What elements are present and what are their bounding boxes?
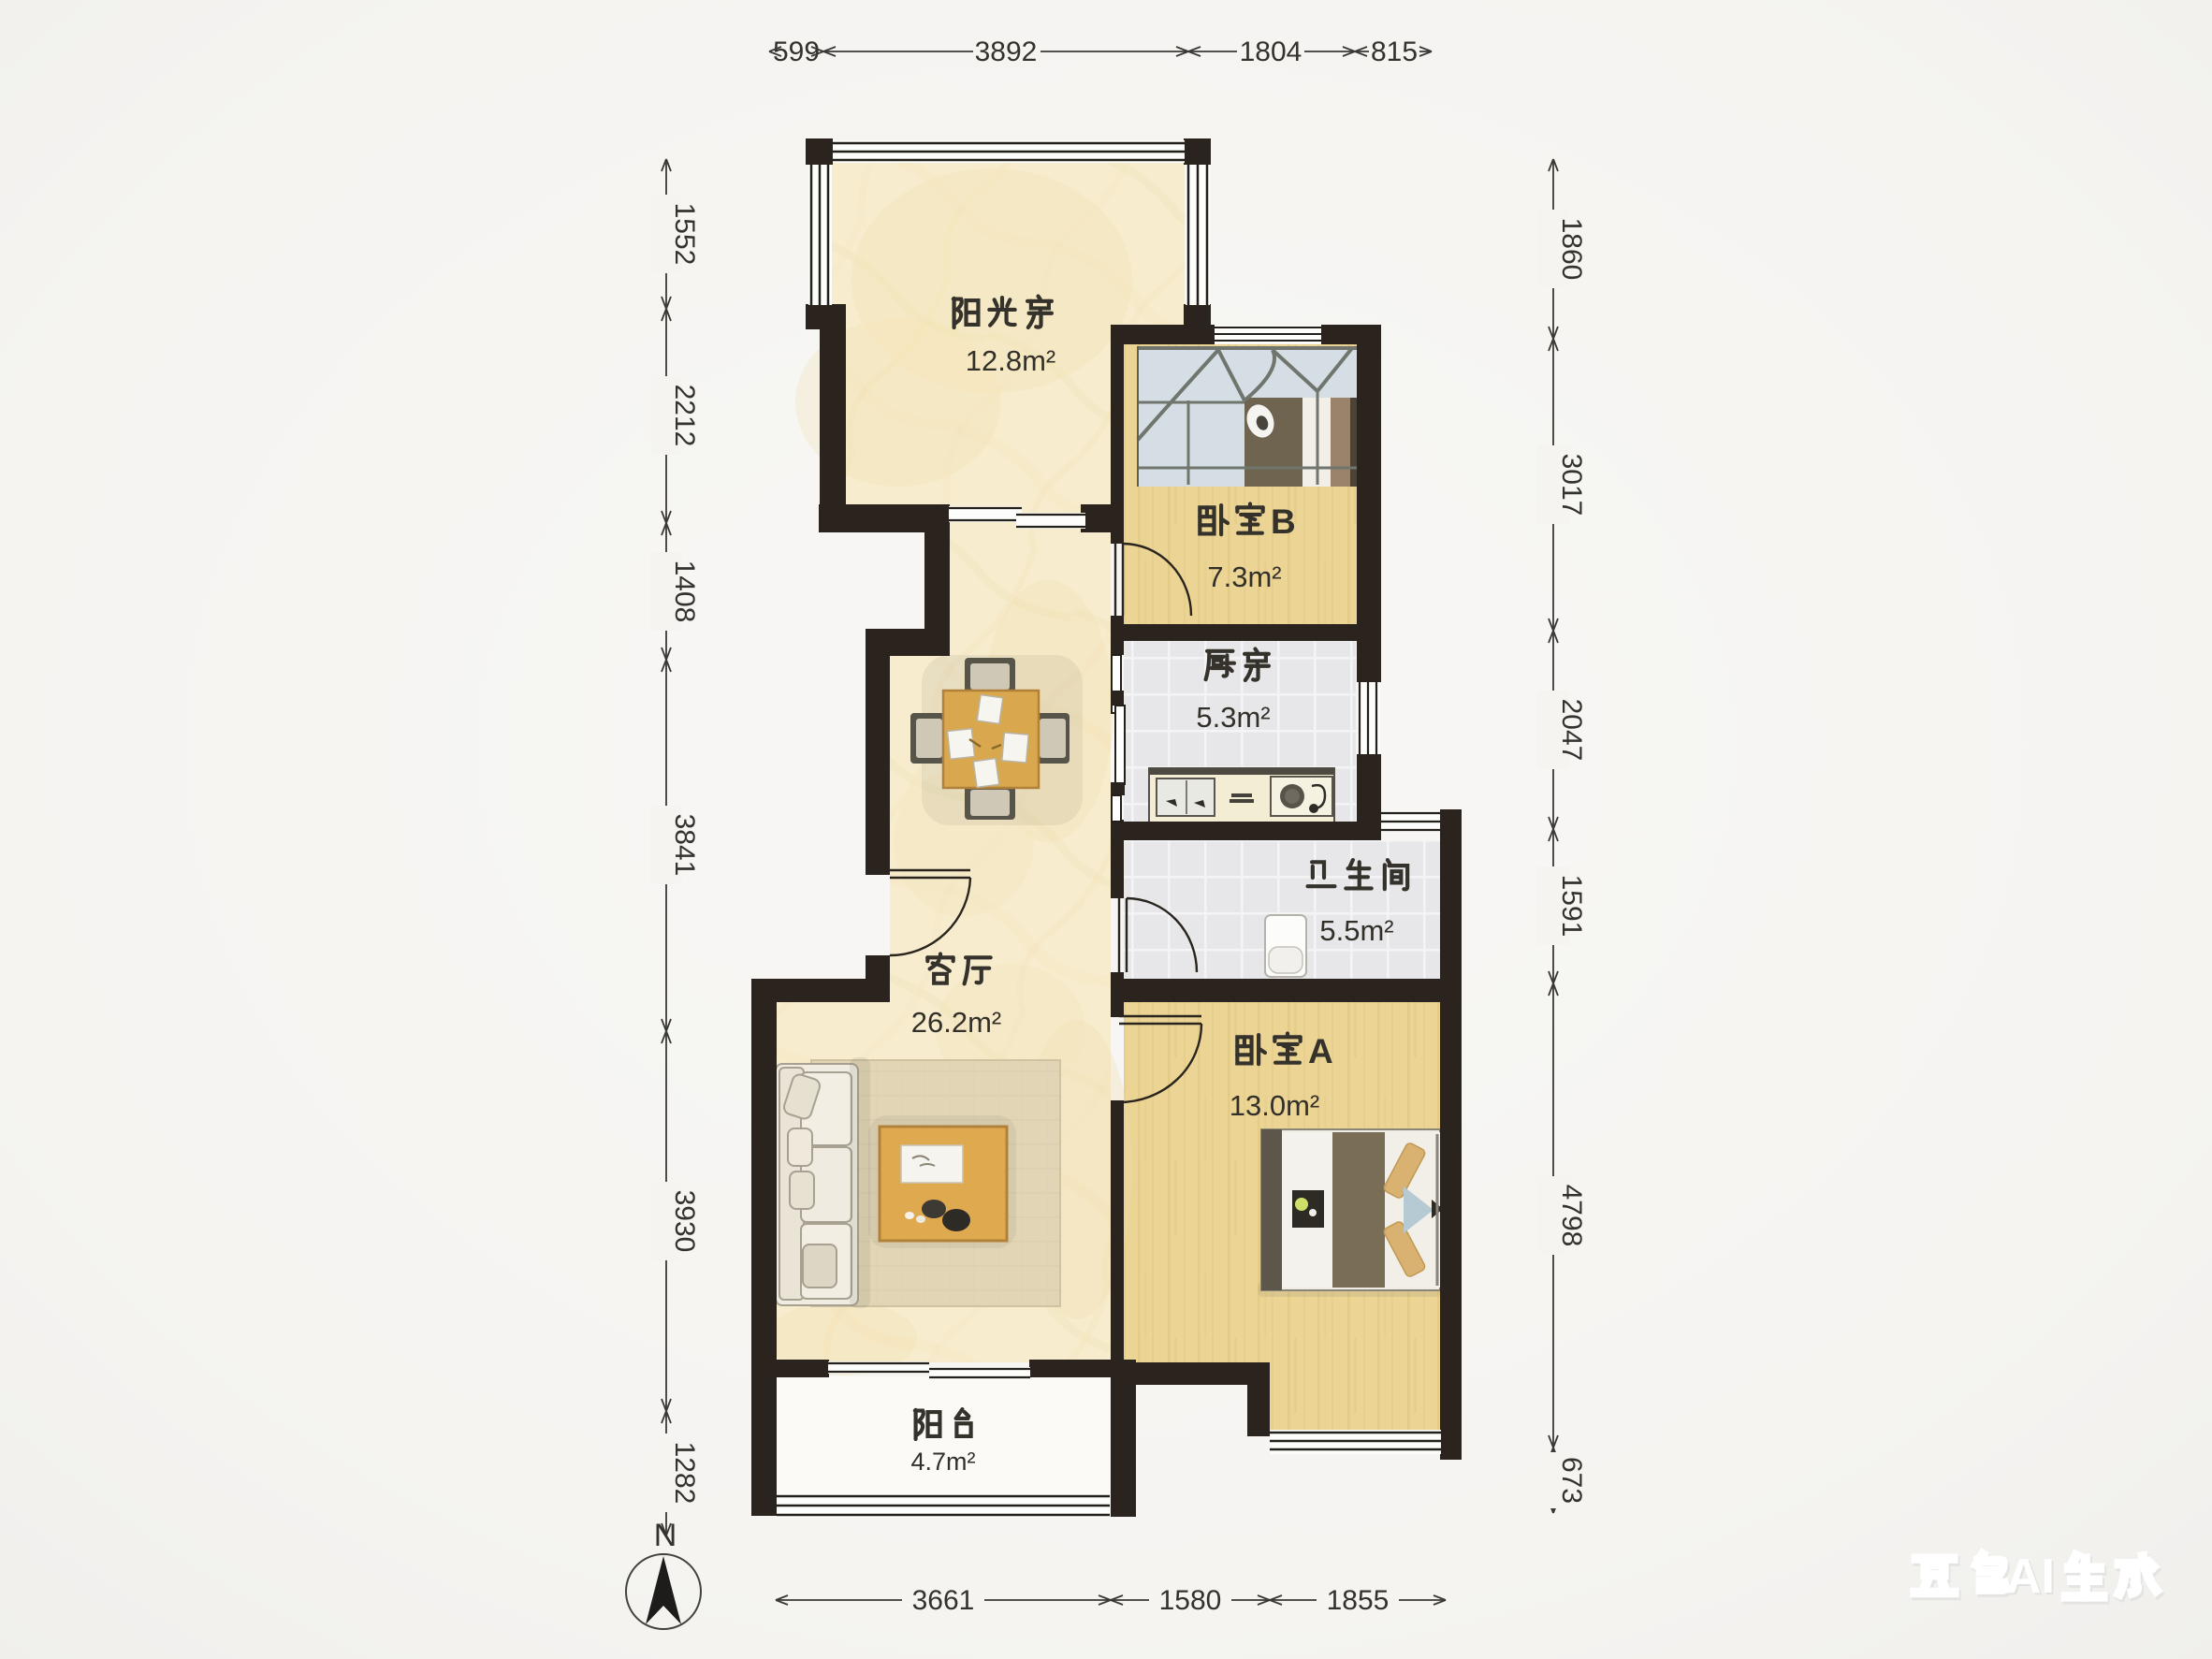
svg-text:B: B xyxy=(1271,502,1296,541)
svg-text:N: N xyxy=(654,1518,677,1553)
svg-text:A: A xyxy=(1308,1032,1333,1070)
svg-text:1860: 1860 xyxy=(1556,218,1587,281)
svg-text:2047: 2047 xyxy=(1556,699,1587,762)
svg-text:7.3m²: 7.3m² xyxy=(1207,560,1281,593)
svg-text:26.2m²: 26.2m² xyxy=(911,1006,1001,1039)
svg-text:815: 815 xyxy=(1371,36,1418,67)
svg-text:3841: 3841 xyxy=(669,814,700,877)
svg-text:3892: 3892 xyxy=(975,36,1038,67)
svg-text:3930: 3930 xyxy=(669,1190,700,1253)
svg-text:599: 599 xyxy=(773,36,820,67)
svg-text:5.3m²: 5.3m² xyxy=(1196,701,1270,734)
svg-text:12.8m²: 12.8m² xyxy=(966,344,1055,377)
svg-text:1804: 1804 xyxy=(1240,36,1302,67)
svg-text:1591: 1591 xyxy=(1556,875,1587,938)
svg-text:5.5m²: 5.5m² xyxy=(1319,914,1393,947)
svg-text:1552: 1552 xyxy=(669,203,700,266)
svg-text:4798: 4798 xyxy=(1556,1185,1587,1247)
svg-text:4.7m²: 4.7m² xyxy=(910,1448,975,1476)
svg-text:1855: 1855 xyxy=(1327,1585,1390,1616)
svg-text:3661: 3661 xyxy=(912,1585,975,1616)
svg-text:1580: 1580 xyxy=(1159,1585,1222,1616)
svg-text:1408: 1408 xyxy=(669,560,700,623)
svg-text:1282: 1282 xyxy=(669,1442,700,1505)
svg-text:AI: AI xyxy=(2006,1550,2055,1604)
svg-text:3017: 3017 xyxy=(1556,454,1587,517)
svg-text:13.0m²: 13.0m² xyxy=(1230,1089,1319,1122)
svg-text:673: 673 xyxy=(1556,1457,1587,1504)
svg-text:2212: 2212 xyxy=(669,385,700,447)
